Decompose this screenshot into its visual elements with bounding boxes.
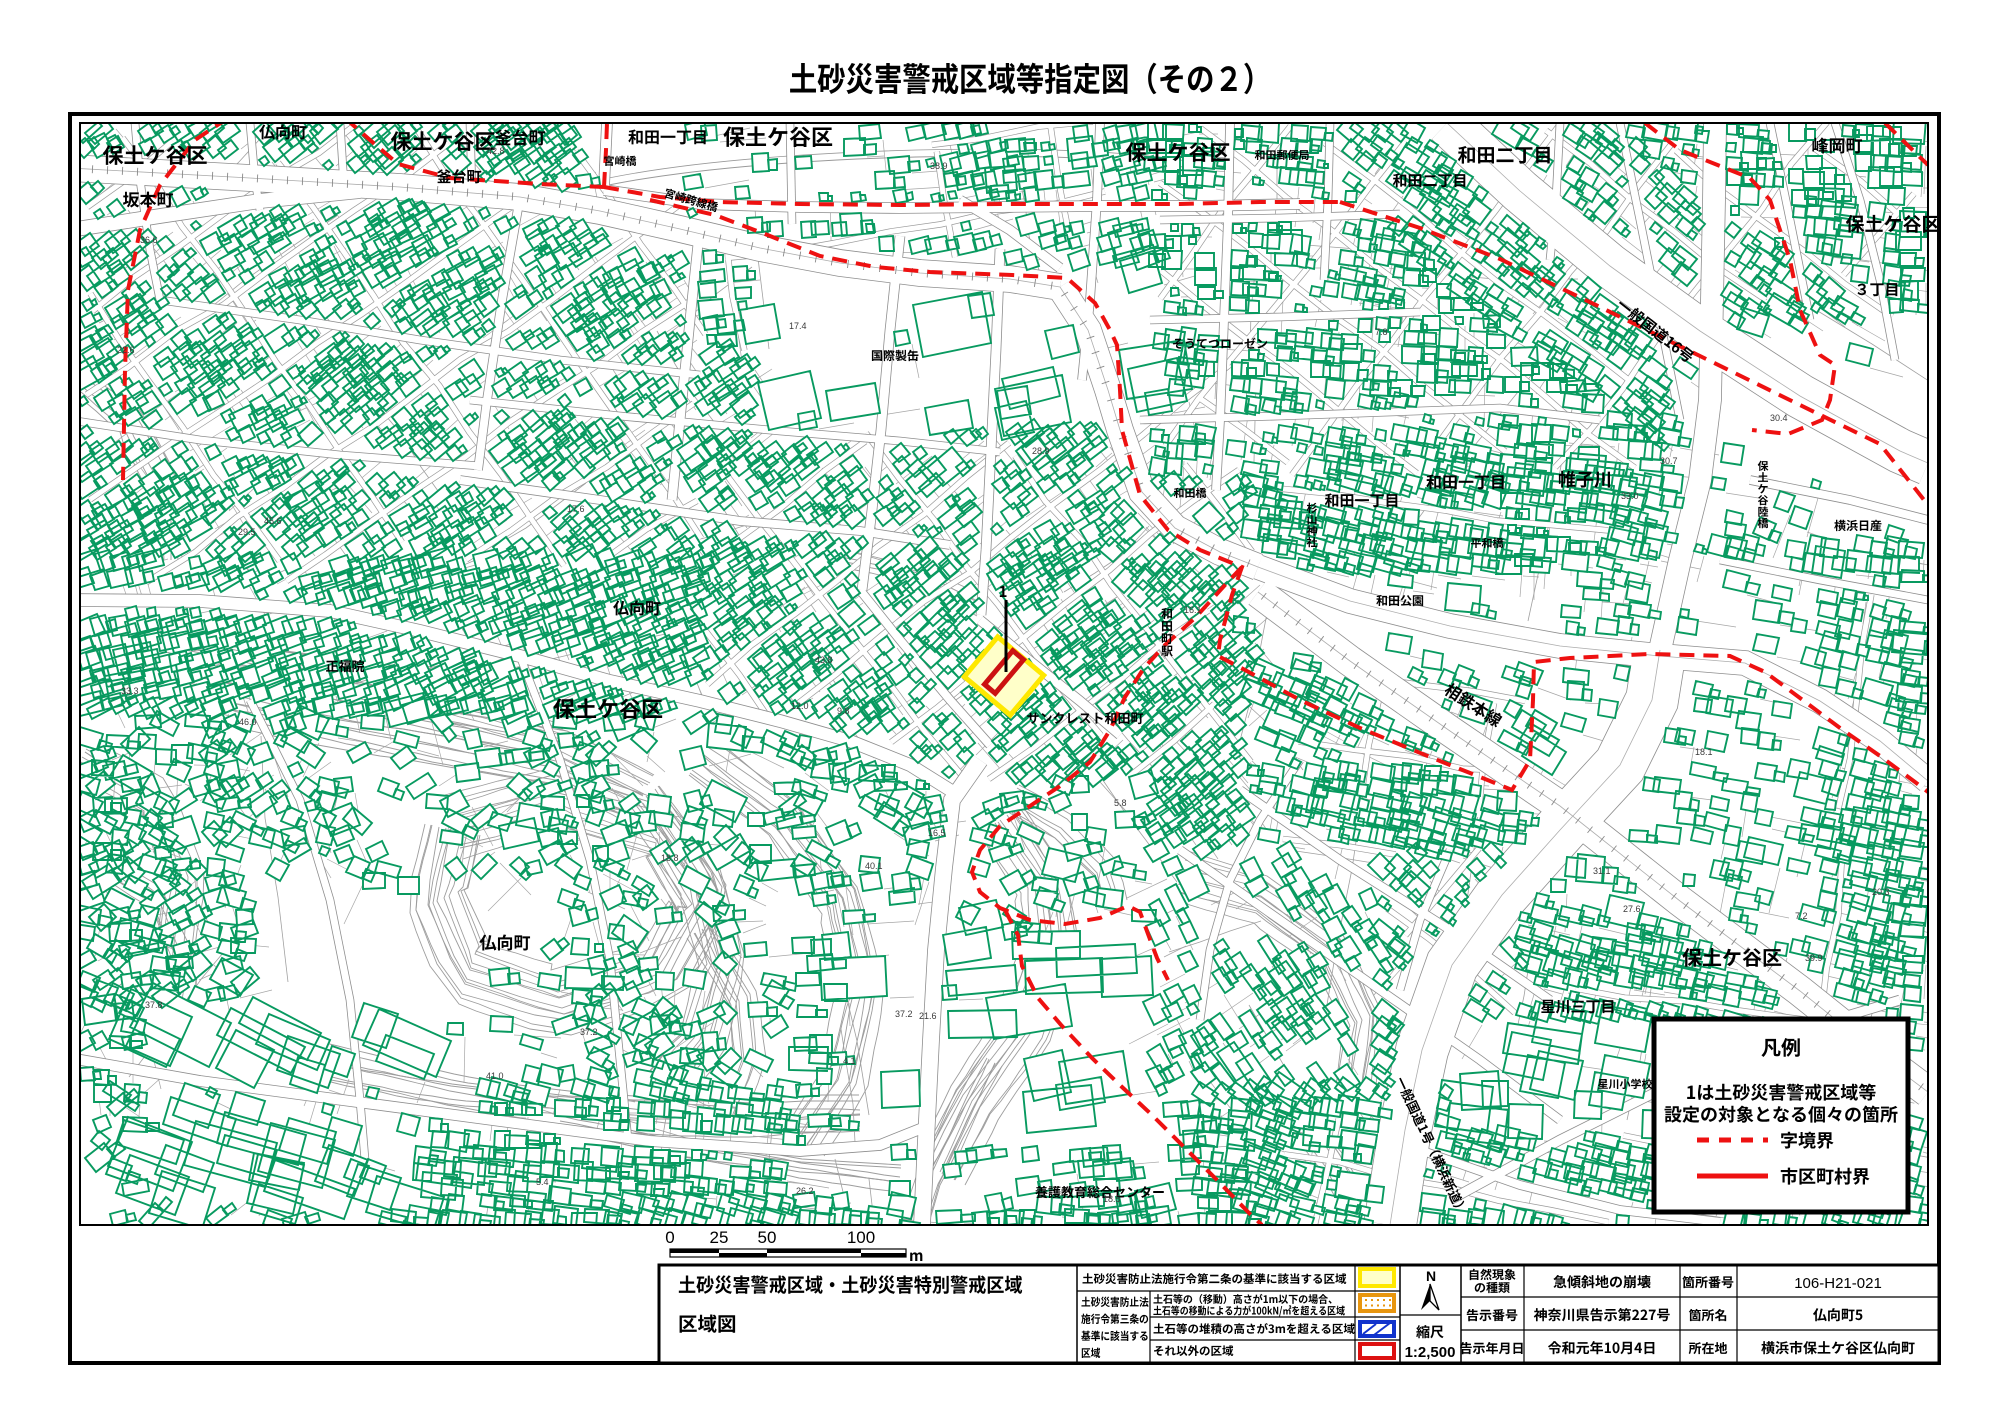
svg-text:50: 50 — [758, 1228, 777, 1247]
svg-text:N: N — [1426, 1268, 1436, 1284]
svg-text:29.5: 29.5 — [238, 527, 256, 537]
svg-text:16.5: 16.5 — [928, 828, 946, 838]
svg-text:1:2,500: 1:2,500 — [1405, 1344, 1456, 1361]
svg-text:30.7: 30.7 — [1660, 456, 1678, 466]
svg-text:33.0: 33.0 — [1621, 491, 1639, 501]
svg-text:100: 100 — [847, 1228, 875, 1247]
svg-text:7.2: 7.2 — [1795, 911, 1808, 921]
svg-text:18.1: 18.1 — [1695, 747, 1713, 757]
svg-text:12.0: 12.0 — [791, 701, 809, 711]
svg-text:33.3: 33.3 — [121, 686, 139, 696]
svg-text:45.6: 45.6 — [264, 516, 282, 526]
svg-text:43.8: 43.8 — [815, 655, 833, 665]
svg-text:39.9: 39.9 — [1805, 953, 1823, 963]
svg-text:25: 25 — [710, 1228, 729, 1247]
svg-text:31.1: 31.1 — [1593, 866, 1611, 876]
svg-text:36.6: 36.6 — [140, 235, 158, 245]
svg-text:7.8: 7.8 — [1375, 327, 1388, 337]
svg-text:106-H21-021: 106-H21-021 — [1794, 1275, 1882, 1292]
svg-text:26.2: 26.2 — [796, 1186, 814, 1196]
svg-text:46.0: 46.0 — [239, 717, 257, 727]
svg-text:22.6: 22.6 — [117, 345, 135, 355]
svg-text:5.4: 5.4 — [536, 1177, 549, 1187]
svg-text:0: 0 — [665, 1228, 674, 1247]
svg-text:18.5: 18.5 — [1103, 1194, 1121, 1204]
svg-text:21.6: 21.6 — [919, 1011, 937, 1021]
svg-text:37.8: 37.8 — [145, 1000, 163, 1010]
svg-text:17.4: 17.4 — [789, 321, 807, 331]
svg-text:40.1: 40.1 — [865, 861, 883, 871]
svg-text:28.9: 28.9 — [1032, 446, 1050, 456]
svg-text:5.8: 5.8 — [1114, 798, 1127, 808]
svg-text:18.8: 18.8 — [661, 853, 679, 863]
svg-text:27.6: 27.6 — [1623, 904, 1641, 914]
svg-text:41.0: 41.0 — [486, 1071, 504, 1081]
svg-text:30.4: 30.4 — [1770, 413, 1788, 423]
svg-text:37.2: 37.2 — [580, 1027, 598, 1037]
svg-text:42.8: 42.8 — [487, 146, 505, 156]
svg-text:4.1: 4.1 — [843, 1056, 856, 1066]
svg-text:17.6: 17.6 — [567, 504, 585, 514]
svg-text:38.9: 38.9 — [930, 161, 948, 171]
svg-text:20.3: 20.3 — [1872, 887, 1890, 897]
svg-text:37.2: 37.2 — [895, 1009, 913, 1019]
svg-text:16.1: 16.1 — [1184, 605, 1202, 615]
svg-text:9.8: 9.8 — [837, 706, 850, 716]
